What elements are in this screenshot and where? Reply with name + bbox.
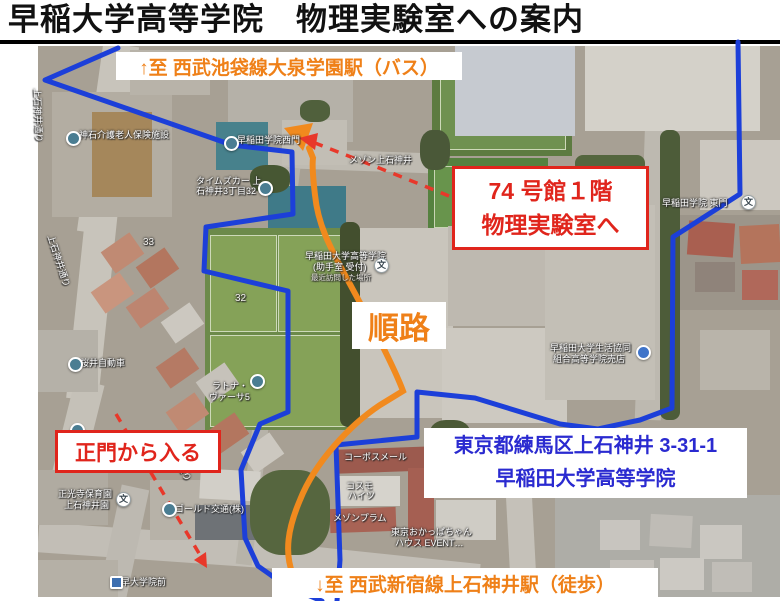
route-label-text: 順路	[368, 303, 430, 348]
route-label-box: 順路	[352, 302, 446, 349]
building	[585, 46, 760, 131]
main-gate-callout: 正門から入る	[55, 430, 221, 473]
building	[92, 112, 152, 197]
building	[436, 500, 496, 540]
bottom-direction-text: ↓至 西武新宿線上石神井駅（徒歩）	[315, 570, 615, 597]
building	[742, 270, 778, 300]
building	[712, 562, 752, 592]
address-line: 東京都練馬区上石神井 3-31-1	[454, 430, 717, 463]
top-direction-banner: ↑至 西武池袋線大泉学園駅（バス）	[116, 52, 462, 80]
building	[38, 560, 118, 597]
tennis-courts	[210, 235, 277, 332]
building	[739, 224, 780, 264]
page-title: 早稲大学高等学院 物理実験室への案内	[8, 0, 778, 40]
building	[695, 262, 735, 292]
title-rule	[0, 40, 780, 44]
building	[649, 514, 693, 548]
building	[282, 120, 347, 165]
address-callout: 東京都練馬区上石神井 3-31-1 早稲田大学高等学院	[424, 428, 747, 498]
building	[330, 507, 397, 533]
main-gate-text: 正門から入る	[75, 437, 201, 467]
bottom-direction-banner: ↓至 西武新宿線上石神井駅（徒歩）	[272, 568, 658, 598]
building	[166, 392, 210, 433]
trees	[300, 100, 330, 122]
trees	[250, 470, 330, 555]
building	[268, 186, 346, 230]
building	[216, 122, 268, 170]
top-direction-text: ↑至 西武池袋線大泉学園駅（バス）	[139, 53, 439, 80]
building	[700, 140, 780, 210]
trees	[660, 130, 680, 420]
lab-room-line: 物理実験室へ	[482, 208, 620, 242]
building	[660, 558, 704, 590]
building	[338, 476, 400, 506]
lab-building-line: 74 号館１階	[489, 174, 613, 208]
building	[700, 330, 770, 390]
building	[38, 470, 108, 525]
building	[687, 220, 735, 257]
building	[700, 525, 742, 559]
building	[455, 46, 575, 136]
guide-page: 早稲大学高等学院 物理実験室への案内	[0, 0, 780, 601]
building	[156, 347, 200, 388]
parking-lot	[38, 330, 98, 392]
trees	[250, 165, 290, 193]
school-name-line: 早稲田大学高等学院	[496, 463, 676, 496]
lab-location-callout: 74 号館１階 物理実験室へ	[452, 166, 649, 250]
tennis-courts	[278, 235, 347, 332]
trees	[420, 130, 450, 170]
building	[600, 520, 640, 550]
